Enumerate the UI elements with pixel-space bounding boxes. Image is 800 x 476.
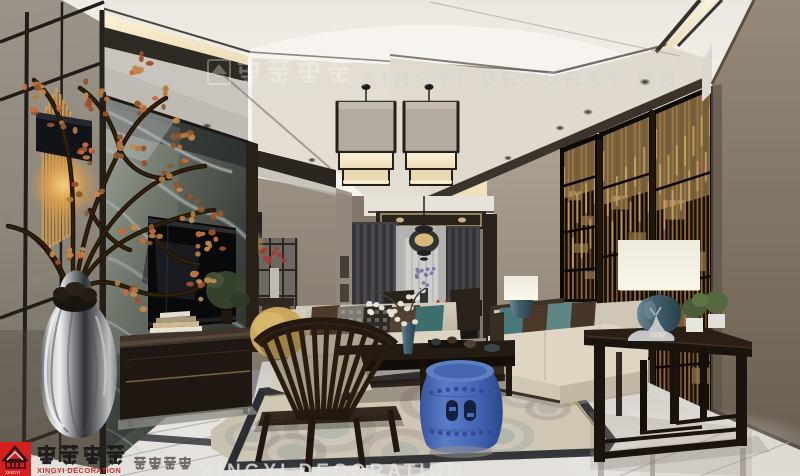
svg-text:XINGYI DECORAT ON: XINGYI DECORAT ON bbox=[362, 68, 681, 91]
svg-text:XINGYI DECORATION: XINGYI DECORATION bbox=[201, 461, 465, 476]
svg-text:XINGYI: XINGYI bbox=[5, 470, 20, 475]
svg-text:XINGYI DECORATION: XINGYI DECORATION bbox=[238, 89, 346, 98]
svg-text:XINGYI DECORATION: XINGYI DECORATION bbox=[37, 466, 121, 475]
